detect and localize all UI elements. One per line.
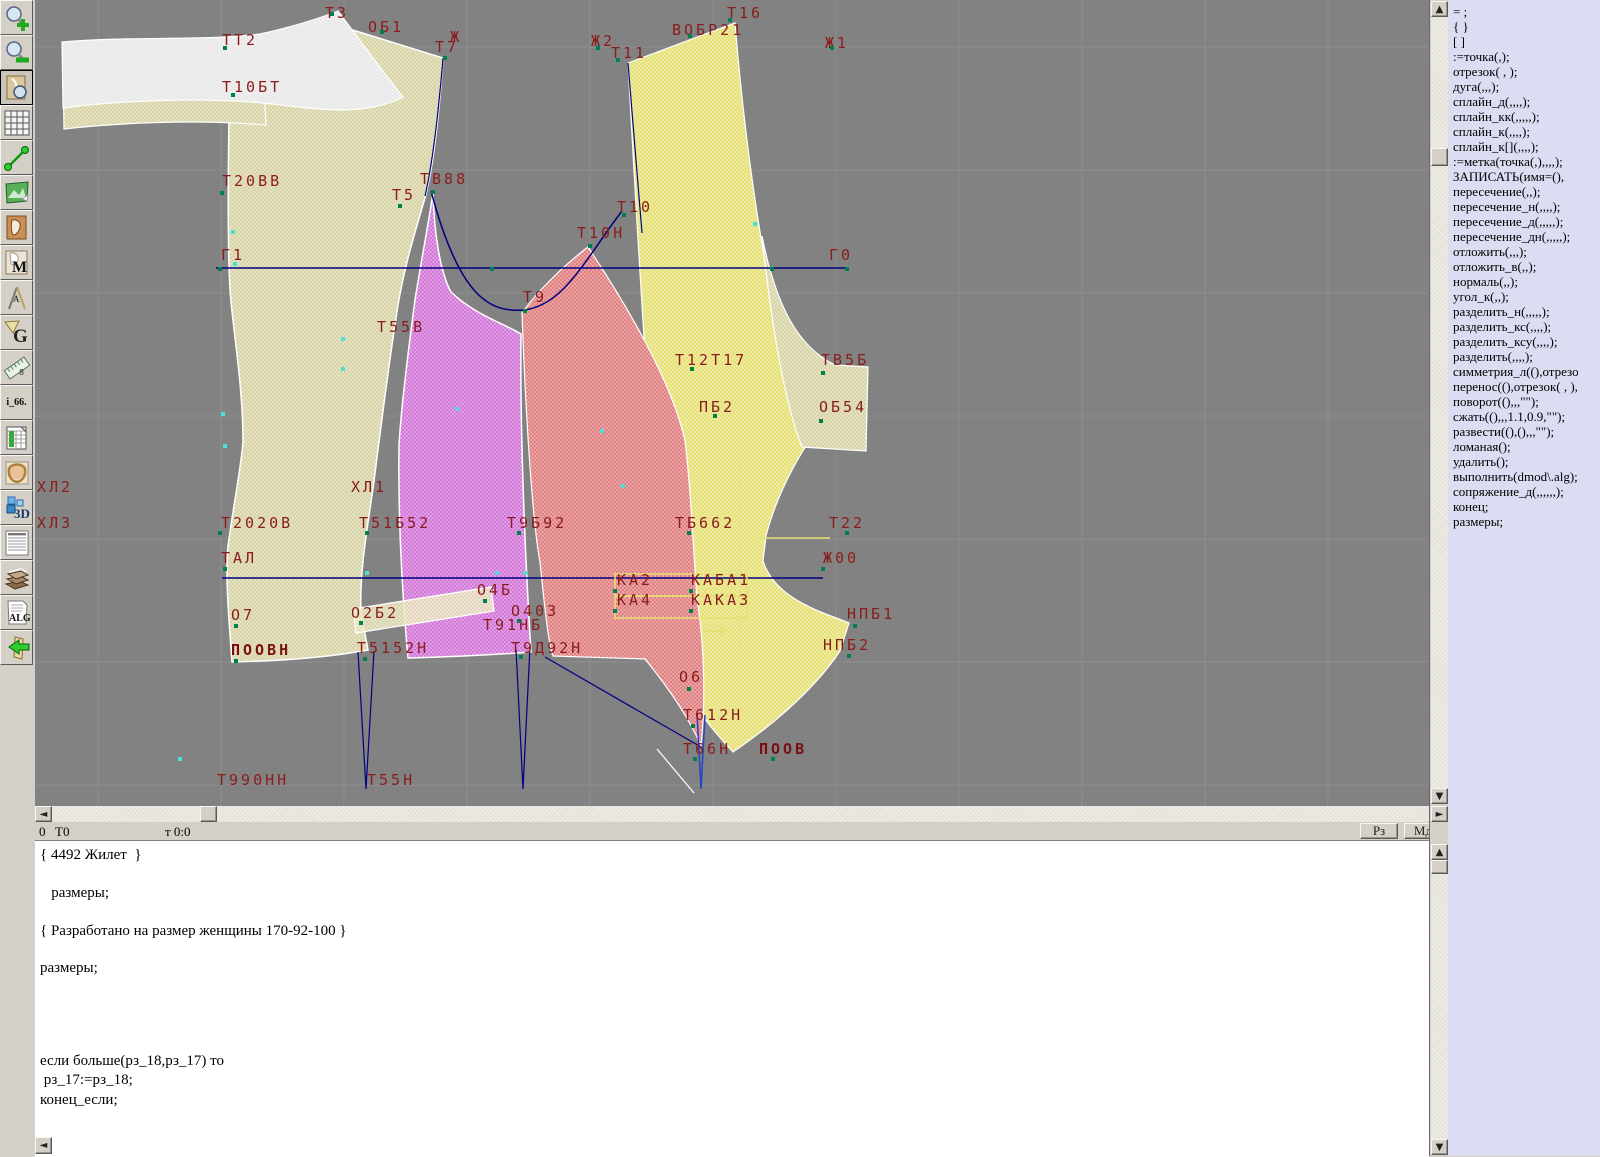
point-label: ХЛ1 (351, 480, 387, 495)
point-marker[interactable] (330, 12, 334, 16)
command-list-item[interactable]: ЗАПИСАТЬ(имя=(), (1453, 170, 1564, 184)
command-list-item[interactable]: ломаная(); (1453, 440, 1511, 454)
point-label: Ж00 (823, 551, 859, 566)
point-label: ТАЛ (221, 551, 257, 566)
point-marker[interactable] (596, 46, 600, 50)
command-list-item[interactable]: разделить_ксу(,,,,); (1453, 335, 1557, 349)
point-marker[interactable] (365, 531, 369, 535)
point-marker[interactable] (588, 244, 592, 248)
point-marker[interactable] (613, 589, 617, 593)
command-list-panel: = ;{ }[ ]:=точка(,);отрезок( , );дуга(,,… (1448, 0, 1600, 1156)
point-marker-selected[interactable] (621, 484, 625, 488)
point-marker[interactable] (220, 191, 224, 195)
pattern-m-icon[interactable]: M (0, 245, 33, 280)
point-label: Т5 (392, 188, 416, 203)
point-label: ВОБР21 (672, 23, 744, 38)
editor-vscroll-up-button[interactable]: ▲ (1431, 844, 1448, 860)
svg-text:ALG: ALG (9, 613, 31, 624)
command-list-item[interactable]: выполнить(dmod\.alg); (1453, 470, 1578, 484)
command-list-item[interactable]: пересечение_д(,,,,,); (1453, 215, 1563, 229)
point-marker[interactable] (483, 599, 487, 603)
point-marker[interactable] (223, 46, 227, 50)
editor-line: размеры; (40, 885, 109, 902)
point-label: Ж1 (825, 36, 849, 51)
command-list-item[interactable]: разделить_н(,,,,,); (1453, 305, 1550, 319)
zoom-in-icon[interactable] (0, 0, 33, 35)
command-list-item[interactable]: разделить_кс(,,,,); (1453, 320, 1551, 334)
svg-text:M: M (12, 259, 27, 276)
point-marker[interactable] (728, 18, 732, 22)
command-list-item[interactable]: сплайн_д(,,,,); (1453, 95, 1530, 109)
point-label: ХЛ2 (37, 480, 73, 495)
point-label: О7 (231, 608, 255, 623)
command-list-item[interactable]: размеры; (1453, 515, 1503, 529)
g-icon[interactable]: G (0, 315, 33, 350)
piece-zoom-icon[interactable] (0, 70, 33, 105)
magnifier-minus-glyph (3, 39, 31, 67)
point-marker[interactable] (519, 655, 523, 659)
command-list-item[interactable]: поворот((),,,""); (1453, 395, 1539, 409)
dart-middle (516, 647, 530, 789)
point-label: Т51Б52 (359, 516, 431, 531)
command-list-item[interactable]: пересечение_н(,,,,); (1453, 200, 1560, 214)
point-label: НПБ1 (847, 607, 895, 622)
point-marker-selected[interactable] (523, 571, 527, 575)
exit-arrow-glyph (3, 634, 31, 662)
hscroll-right-button[interactable]: ► (1431, 806, 1448, 822)
status-cursor-pos: т 0:0 (165, 824, 191, 840)
point-marker[interactable] (845, 531, 849, 535)
list-glyph (3, 529, 31, 557)
command-list-item[interactable]: сплайн_к(,,,,); (1453, 125, 1530, 139)
point-label: Т9 (523, 290, 547, 305)
point-marker[interactable] (693, 757, 697, 761)
editor-line: { Разработано на размер женщины 170-92-1… (40, 923, 347, 940)
point-marker-selected[interactable] (221, 412, 225, 416)
point-marker[interactable] (853, 624, 857, 628)
editor-vscroll-thumb[interactable] (1431, 860, 1448, 874)
point-label: ПООВ (759, 742, 807, 757)
image-glyph (3, 179, 31, 207)
point-label: КА4 (617, 593, 653, 608)
canvas-vscroll-up-button[interactable]: ▲ (1431, 1, 1448, 17)
point-label: Т55В (377, 320, 425, 335)
command-list-item[interactable]: сплайн_к[](,,,,); (1453, 140, 1539, 154)
alg-icon[interactable]: ALG (0, 595, 33, 630)
point-marker-selected[interactable] (753, 222, 757, 226)
point-label: ПБ2 (699, 400, 735, 415)
exit-icon[interactable] (0, 630, 33, 665)
point-marker[interactable] (218, 267, 222, 271)
point-marker-selected[interactable] (495, 571, 499, 575)
point-marker[interactable] (821, 567, 825, 571)
point-label: Т16 (727, 6, 763, 21)
point-marker-selected[interactable] (341, 337, 345, 341)
point-marker[interactable] (690, 367, 694, 371)
algorithm-editor[interactable]: ◄ { 4492 Жилет } размеры;{ Разработано н… (35, 840, 1429, 1157)
piece-magnifier-glyph (3, 74, 31, 102)
command-list-item[interactable]: разделить(,,,,); (1453, 350, 1533, 364)
pattern-cad-app: M А G 8 i_66. (0, 0, 1600, 1156)
command-list-item[interactable]: симметрия_л((),отрезо (1453, 365, 1579, 379)
point-marker[interactable] (688, 34, 692, 38)
statusbar: 0 Т0 т 0:0 Рз Мд (35, 822, 1448, 840)
command-list-item[interactable]: перенос((),отрезок( , ), (1453, 380, 1578, 394)
point-marker[interactable] (691, 724, 695, 728)
point-label: Т55Н (367, 773, 415, 788)
command-list-item[interactable]: угол_к(,,); (1453, 290, 1509, 304)
point-label: Т612Н (683, 708, 743, 723)
segment-glyph (3, 144, 31, 172)
g-glyph: G (3, 319, 31, 347)
command-list-item[interactable]: сплайн_кк(,,,,,); (1453, 110, 1540, 124)
point-label: КАБА1 (691, 573, 751, 588)
point-label: НПБ2 (823, 638, 871, 653)
point-label: ТБ662 (675, 516, 735, 531)
point-marker[interactable] (490, 267, 494, 271)
right-scroll-rail: ▲ ▼ ► ▲ ▼ (1429, 0, 1449, 1156)
command-list-item[interactable]: пересечение_дн(,,,,,); (1453, 230, 1570, 244)
point-marker-selected[interactable] (231, 230, 235, 234)
command-list-item[interactable]: отложить_в(,,); (1453, 260, 1536, 274)
svg-text:G: G (13, 326, 28, 347)
ruler-icon[interactable]: 8 (0, 350, 33, 385)
point-label: Т990НН (217, 773, 289, 788)
measure-icon[interactable]: А (0, 280, 33, 315)
point-marker[interactable] (713, 414, 717, 418)
point-label: О6 (679, 670, 703, 685)
editor-line: рз_17:=рз_18; (40, 1072, 133, 1089)
point-label: Т22 (829, 516, 865, 531)
svg-text:8: 8 (19, 368, 24, 377)
point-label: ТТ2 (222, 33, 258, 48)
point-label: Т7 (435, 40, 459, 55)
image-icon[interactable] (0, 175, 33, 210)
point-marker[interactable] (517, 619, 521, 623)
point-label: КА2 (617, 573, 653, 588)
point-marker[interactable] (687, 531, 691, 535)
point-label: ХЛ3 (37, 516, 73, 531)
canvas-vscroll-down-button[interactable]: ▼ (1431, 788, 1448, 804)
command-list-item[interactable]: сопряжение_д(,,,,,,); (1453, 485, 1564, 499)
dart-left (358, 651, 374, 789)
hscroll-thumb[interactable] (200, 806, 217, 822)
pattern-canvas[interactable]: Т3ОБ1ТТ2ЖТ7Ж2Т11ВОБР21Т16Ж1Т10БТТ20ВВТ5Т… (35, 0, 1429, 806)
point-label: Т3 (325, 6, 349, 21)
point-marker[interactable] (622, 213, 626, 217)
pattern-pieces (62, 11, 868, 752)
point-marker-selected[interactable] (365, 571, 369, 575)
point-label: КАКА3 (691, 593, 751, 608)
books-glyph (3, 564, 31, 592)
point-label: Т5152Н (357, 641, 429, 656)
rz-button[interactable]: Рз (1360, 823, 1398, 839)
command-list-item[interactable]: сжать((),,,1.1,0.9,""); (1453, 410, 1565, 424)
toolbar: M А G 8 i_66. (0, 0, 36, 1156)
command-list-item[interactable]: удалить(); (1453, 455, 1509, 469)
threed-icon[interactable]: 3D (0, 490, 33, 525)
point-marker[interactable] (821, 371, 825, 375)
point-label: Г0 (829, 248, 853, 263)
point-marker-selected[interactable] (233, 262, 237, 266)
point-marker[interactable] (363, 657, 367, 661)
grid-icon[interactable] (0, 105, 33, 140)
grid-glyph (3, 109, 31, 137)
alg-glyph: ALG (3, 599, 31, 627)
canvas-hscrollbar[interactable]: ◄ (35, 806, 1429, 822)
point-marker[interactable] (231, 93, 235, 97)
point-label: Т12Т17 (675, 353, 747, 368)
point-marker[interactable] (523, 309, 527, 313)
segment-icon[interactable] (0, 140, 33, 175)
i66-label: i_66. (6, 397, 26, 408)
point-marker[interactable] (443, 56, 447, 60)
point-label: ОБ1 (368, 20, 404, 35)
point-marker-selected[interactable] (455, 407, 459, 411)
point-label: Т9Д92Н (511, 641, 583, 656)
point-marker[interactable] (517, 531, 521, 535)
point-marker-selected[interactable] (341, 367, 345, 371)
point-label: О2Б2 (351, 606, 399, 621)
point-marker-selected[interactable] (223, 444, 227, 448)
model-photo-glyph (3, 459, 31, 487)
pattern-card-icon[interactable] (0, 210, 33, 245)
point-marker[interactable] (845, 267, 849, 271)
point-marker-selected[interactable] (178, 757, 182, 761)
point-marker[interactable] (689, 589, 693, 593)
point-marker[interactable] (223, 567, 227, 571)
threed-glyph: 3D (3, 494, 31, 522)
list-icon[interactable] (0, 525, 33, 560)
status-zero: 0 (39, 824, 46, 840)
ruler-glyph: 8 (3, 354, 31, 382)
point-marker[interactable] (431, 190, 435, 194)
command-list-item[interactable]: отрезок( , ); (1453, 65, 1518, 79)
editor-vscroll-down-button[interactable]: ▼ (1431, 1139, 1448, 1155)
point-marker[interactable] (770, 267, 774, 271)
command-list-item[interactable]: развести((),(),,,""); (1453, 425, 1554, 439)
editor-line: размеры; (40, 960, 98, 977)
command-list-item[interactable]: отложить(,,,); (1453, 245, 1527, 259)
editor-hscroll-left-button[interactable]: ◄ (35, 1137, 52, 1154)
svg-text:А: А (13, 294, 20, 304)
point-label: ОБ54 (819, 400, 867, 415)
command-list-item[interactable]: дуга(,,,); (1453, 80, 1499, 94)
command-list-item[interactable]: [ ] (1453, 35, 1465, 49)
point-marker[interactable] (359, 621, 363, 625)
point-label: О4Б (477, 583, 513, 598)
point-label: Т66Н (683, 742, 731, 757)
table-icon[interactable] (0, 420, 33, 455)
point-marker[interactable] (398, 204, 402, 208)
point-label: Т10Н (577, 226, 625, 241)
model-photo-icon[interactable] (0, 455, 33, 490)
pattern-m-glyph: M (3, 249, 31, 277)
point-marker[interactable] (830, 46, 834, 50)
command-list-item[interactable]: { } (1453, 20, 1469, 34)
point-marker[interactable] (687, 687, 691, 691)
editor-line: { 4492 Жилет } (40, 847, 142, 864)
point-marker[interactable] (771, 757, 775, 761)
command-list-item[interactable]: = ; (1453, 5, 1467, 19)
point-label: ПООВН (231, 643, 291, 658)
command-list-item[interactable]: конец; (1453, 500, 1488, 514)
canvas-vscroll-thumb[interactable] (1431, 148, 1448, 166)
point-marker[interactable] (613, 609, 617, 613)
editor-line: конец_если; (40, 1092, 118, 1109)
point-label: ТВ5Б (821, 353, 869, 368)
point-marker-selected[interactable] (600, 429, 604, 433)
point-label: ТВ88 (420, 172, 468, 187)
point-marker[interactable] (847, 654, 851, 658)
command-list-item[interactable]: :=метка(точка(,),,,,); (1453, 155, 1563, 169)
point-marker[interactable] (819, 419, 823, 423)
command-list-item[interactable]: пересечение(,,); (1453, 185, 1540, 199)
point-marker[interactable] (218, 531, 222, 535)
pattern-card-glyph (3, 214, 31, 242)
command-list-item[interactable]: нормаль(,,); (1453, 275, 1518, 289)
table-glyph (3, 424, 31, 452)
command-list-item[interactable]: :=точка(,); (1453, 50, 1510, 64)
point-label: Т9Б92 (507, 516, 567, 531)
svg-text:3D: 3D (14, 506, 30, 521)
hscroll-left-button[interactable]: ◄ (35, 806, 52, 822)
point-label: Т20ВВ (222, 174, 282, 189)
point-marker[interactable] (234, 624, 238, 628)
point-marker[interactable] (616, 58, 620, 62)
magnifier-plus-glyph (3, 4, 31, 32)
status-point-name: Т0 (55, 824, 69, 840)
books-icon[interactable] (0, 560, 33, 595)
point-marker[interactable] (234, 659, 238, 663)
zoom-out-icon[interactable] (0, 35, 33, 70)
compass-glyph: А (3, 284, 31, 312)
editor-line: если больше(рз_18,рз_17) то (40, 1053, 224, 1070)
i66-icon[interactable]: i_66. (0, 385, 33, 420)
point-marker[interactable] (380, 30, 384, 34)
point-label: Т2020В (221, 516, 293, 531)
point-marker[interactable] (689, 609, 693, 613)
point-label: Г1 (221, 248, 245, 263)
point-label: Т91НБ (483, 618, 543, 633)
